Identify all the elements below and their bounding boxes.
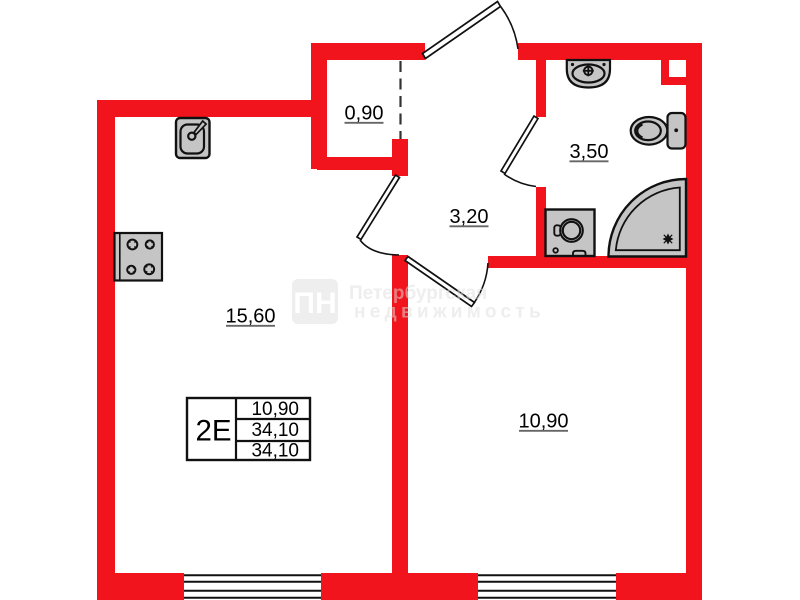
svg-text:3,50: 3,50	[570, 141, 609, 163]
svg-text:10,90: 10,90	[518, 411, 568, 433]
svg-text:3,20: 3,20	[450, 206, 489, 228]
svg-text:34,10: 34,10	[251, 420, 299, 441]
svg-text:2Е: 2Е	[195, 415, 231, 448]
svg-text:15,60: 15,60	[225, 306, 275, 328]
svg-text:10,90: 10,90	[251, 399, 299, 420]
svg-text:ПН: ПН	[293, 287, 336, 320]
svg-text:0,90: 0,90	[345, 103, 384, 125]
svg-text:недвижимость: недвижимость	[354, 302, 545, 323]
svg-text:34,10: 34,10	[251, 441, 299, 462]
